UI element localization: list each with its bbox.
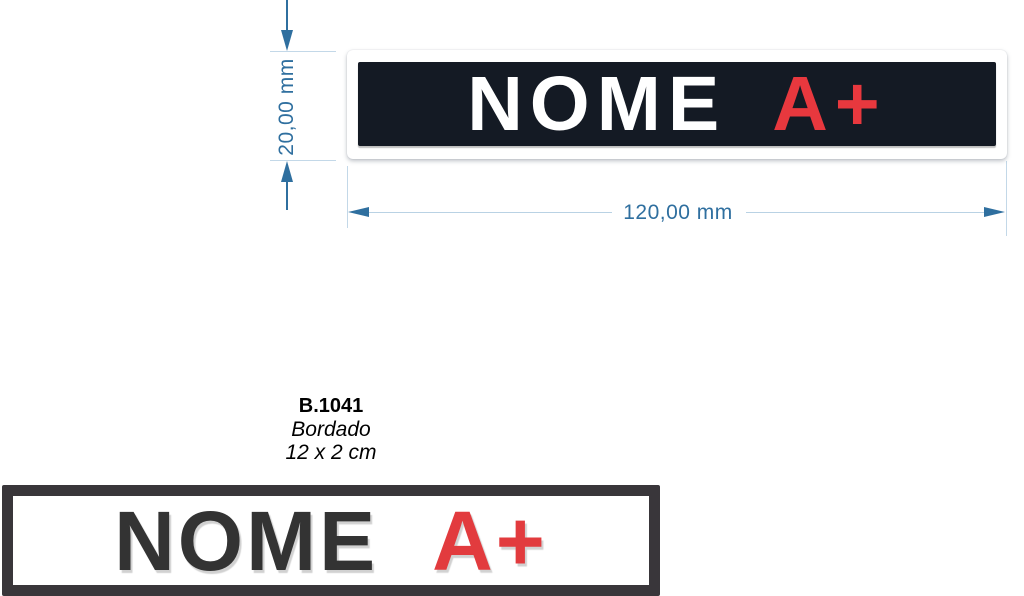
width-extension-line-left [347,166,348,228]
patch-blood-type-text: A+ [432,499,548,583]
dimension-arrow-down-icon [281,30,293,51]
product-technique: Bordado [231,418,431,441]
product-info: B.1041 Bordado 12 x 2 cm [231,395,431,464]
patch-name-text: NOME [114,499,378,583]
width-dimension-line-left [369,212,612,213]
patch-dark-field: NOME A+ [358,62,996,146]
width-extension-line-right [1006,161,1007,236]
patch-preview-dark: NOME A+ [347,50,1007,159]
height-extension-line-bottom [270,160,336,161]
width-dimension-line-right [746,212,984,213]
patch-name-text: NOME [467,66,726,143]
height-dimension-line-top [286,0,288,30]
height-dimension-label: 20,00 mm [275,58,299,155]
technical-drawing-canvas: 20,00 mm 120,00 mm NOME A+ B.1041 Bordad… [0,0,1024,596]
product-size: 12 x 2 cm [231,441,431,464]
dimension-arrow-left-icon [348,207,369,217]
width-dimension-label: 120,00 mm [623,201,733,225]
product-code: B.1041 [231,395,431,418]
dimension-arrow-right-icon [984,207,1005,217]
patch-preview-light: NOME A+ [2,485,660,596]
patch-blood-type-text: A+ [772,66,887,143]
dimension-arrow-up-icon [281,161,293,182]
height-dimension-line-bottom [286,182,288,210]
height-extension-line-top [270,51,336,52]
